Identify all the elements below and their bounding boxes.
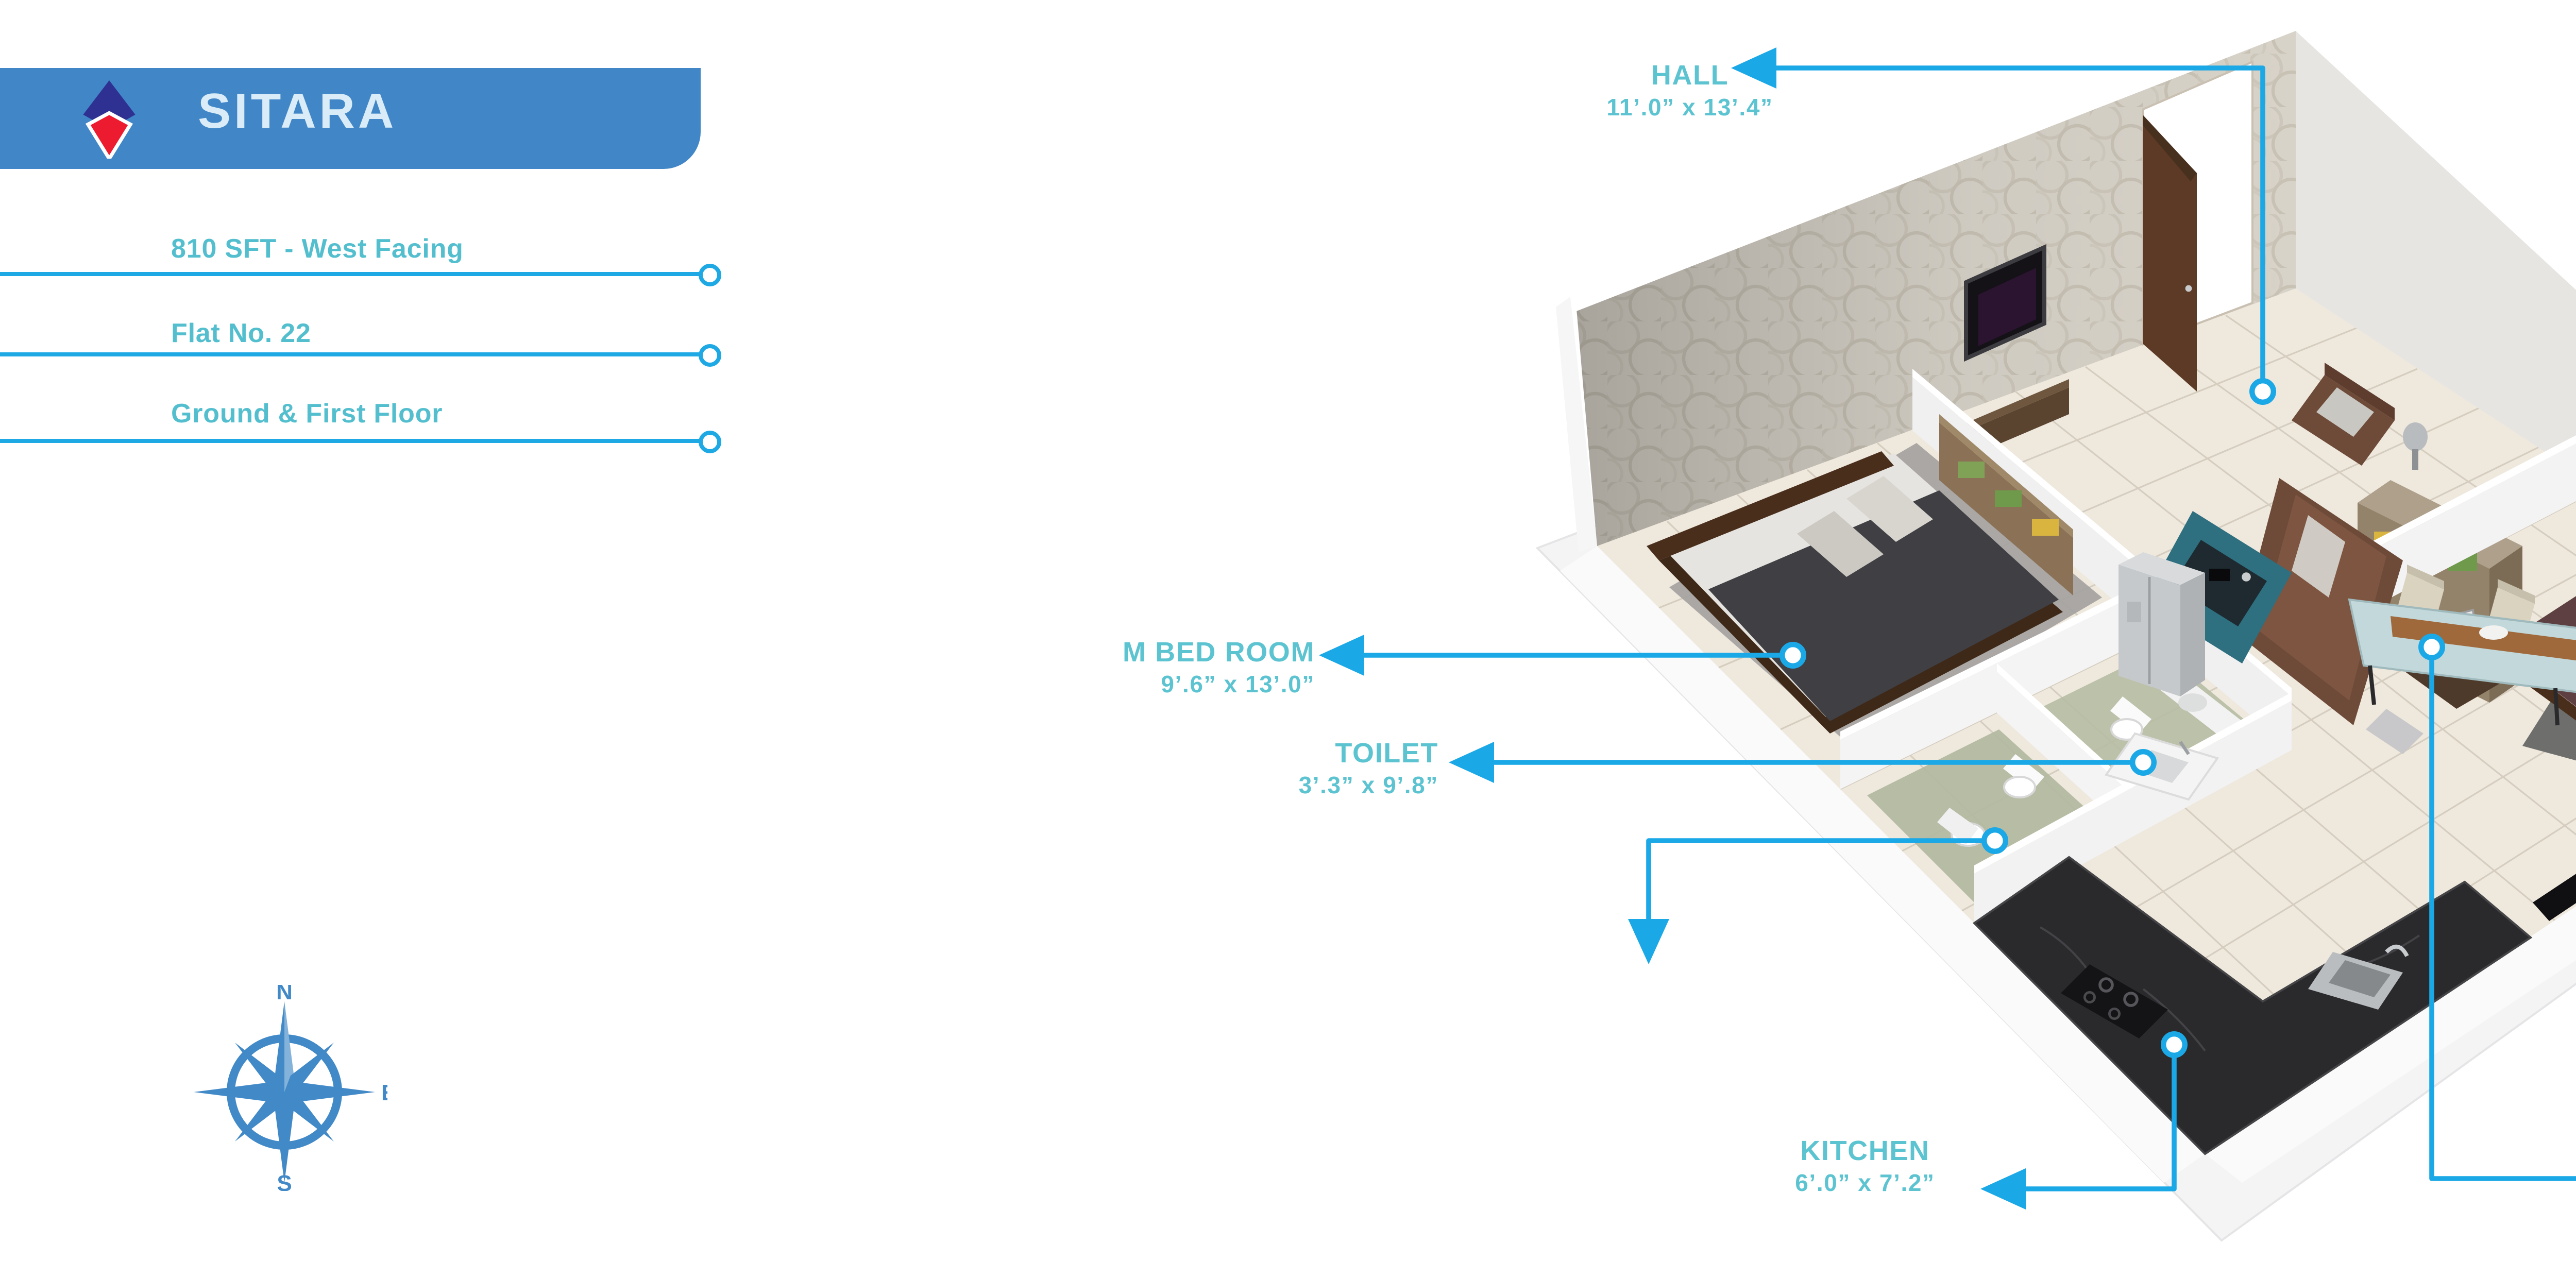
info-rule-2: [0, 352, 701, 356]
info-rule-1-ring: [699, 264, 721, 286]
toilet2-arrow: [1628, 919, 1669, 964]
compass-s: S: [277, 1171, 292, 1191]
toilet-dims: 3’.3” x 9’.8”: [1299, 772, 1438, 803]
label-kitchen: KITCHEN 6’.0” x 7’.2”: [1741, 1133, 1989, 1200]
info-flat-no: Flat No. 22: [171, 317, 311, 348]
info-rule-3-ring: [699, 431, 721, 453]
kitchen-name: KITCHEN: [1741, 1133, 1989, 1169]
info-area-facing: 810 SFT - West Facing: [171, 233, 464, 264]
fridge: [2119, 552, 2205, 696]
brand-banner: SITARA: [0, 68, 701, 169]
compass-n: N: [276, 985, 293, 1004]
info-rule-1: [0, 272, 701, 276]
label-m-bed-room: M BED ROOM 9’.6” x 13’.0”: [1123, 635, 1315, 702]
mbed-dims: 9’.6” x 13’.0”: [1123, 671, 1315, 702]
sitara-logo-icon: [74, 80, 144, 159]
info-floors: Ground & First Floor: [171, 398, 443, 429]
info-rule-3: [0, 439, 701, 443]
hall-dims: 11’.0” x 13’.4”: [1587, 94, 1793, 125]
mbed-dot: [1782, 644, 1804, 666]
mbed-arrow: [1319, 635, 1364, 676]
brand-name: SITARA: [198, 84, 397, 142]
hall-dot: [2252, 381, 2274, 402]
kitchen-dot: [2163, 1034, 2185, 1055]
dining-dot: [2421, 636, 2443, 658]
label-hall: HALL 11’.0” x 13’.4”: [1587, 58, 1793, 125]
hall-name: HALL: [1587, 58, 1793, 94]
stage: SITARA 810 SFT - West Facing Flat No. 22…: [0, 0, 2576, 1261]
toilet-arrow: [1449, 742, 1494, 783]
toilet-dot: [2132, 752, 2154, 773]
mbed-name: M BED ROOM: [1123, 635, 1315, 671]
compass-rose-icon: N E S: [181, 985, 387, 1191]
brochure-page: SITARA 810 SFT - West Facing Flat No. 22…: [0, 0, 2576, 1261]
toilet2-dot: [1984, 830, 2006, 851]
compass-e: E: [381, 1080, 387, 1105]
kitchen-dims: 6’.0” x 7’.2”: [1741, 1169, 1989, 1200]
label-toilet: TOILET 3’.3” x 9’.8”: [1299, 736, 1438, 803]
toilet-name: TOILET: [1299, 736, 1438, 772]
info-rule-2-ring: [699, 344, 721, 367]
